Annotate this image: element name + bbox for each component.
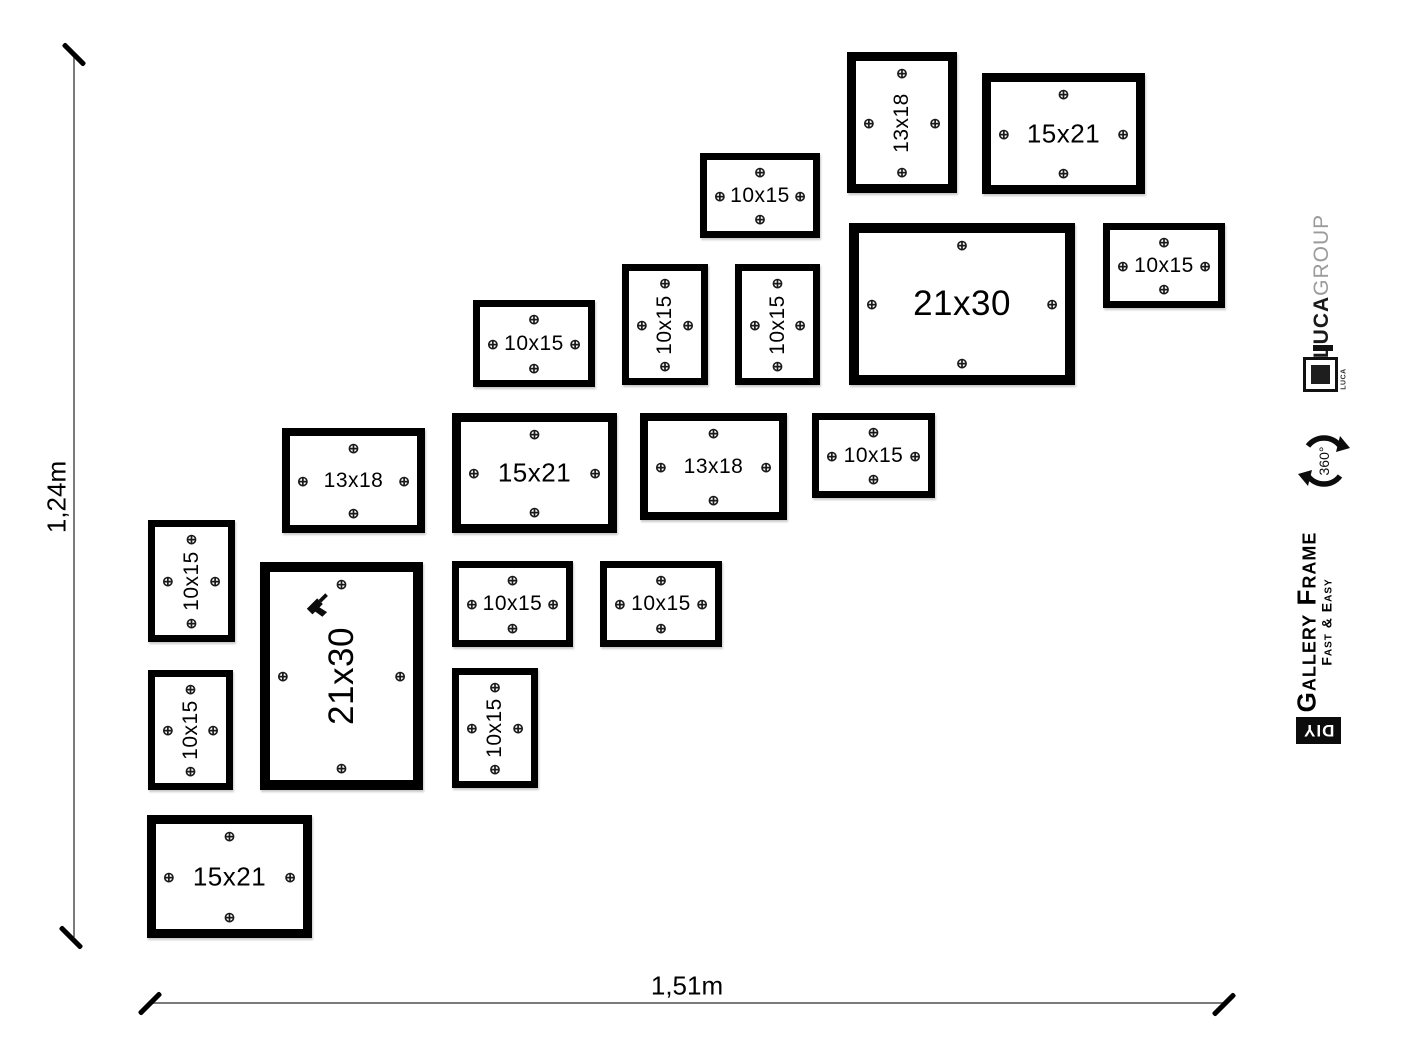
company-logo-inner-square	[1311, 365, 1330, 384]
gallery-wall-layout-diagram: 13x18⊕⊕⊕⊕15x21⊕⊕⊕⊕10x15⊕⊕⊕⊕21x30⊕⊕⊕⊕10x1…	[0, 0, 1412, 1063]
wall-width-label: 1,51m	[651, 971, 723, 1002]
screw-icon: ⊕	[929, 116, 941, 130]
screw-icon: ⊕	[297, 474, 309, 488]
screw-icon: ⊕	[529, 505, 541, 519]
screw-icon: ⊕	[507, 573, 519, 587]
screw-icon: ⊕	[394, 669, 406, 683]
frame-size-label: 13x18	[684, 455, 744, 479]
screw-icon: ⊕	[794, 189, 806, 203]
frame-21x30-4: 21x30⊕⊕⊕⊕	[849, 223, 1075, 385]
company-logo-small-text: LUCA	[1341, 368, 1348, 389]
screw-icon: ⊕	[186, 532, 198, 546]
frame-21x30-14: 21x30⊕⊕⊕⊕	[260, 562, 423, 790]
screw-icon: ⊕	[659, 276, 671, 290]
frame-10x15-13: 10x15⊕⊕⊕⊕	[148, 520, 235, 642]
screw-icon: ⊕	[163, 870, 175, 884]
frame-10x15-16: 10x15⊕⊕⊕⊕	[600, 561, 722, 647]
screw-icon: ⊕	[1058, 166, 1070, 180]
screw-icon: ⊕	[528, 361, 540, 375]
screw-icon: ⊕	[714, 189, 726, 203]
frame-10x15-6: 10x15⊕⊕⊕⊕	[473, 300, 595, 387]
screw-icon: ⊕	[1158, 235, 1170, 249]
frame-10x15-3: 10x15⊕⊕⊕⊕	[700, 153, 820, 238]
company-logo-mark	[1303, 357, 1338, 392]
frame-15x21-2: 15x21⊕⊕⊕⊕	[982, 73, 1145, 194]
screw-icon: ⊕	[956, 356, 968, 370]
frame-size-label: 10x15	[1134, 254, 1194, 278]
height-dimension-line	[73, 54, 75, 937]
screw-icon: ⊕	[696, 597, 708, 611]
product-name: Gallery Frame	[1293, 532, 1319, 713]
frame-10x15-18: 10x15⊕⊕⊕⊕	[452, 668, 538, 788]
screw-icon: ⊕	[186, 616, 198, 630]
screw-icon: ⊕	[487, 337, 499, 351]
frame-size-label: 10x15	[631, 592, 691, 616]
screw-icon: ⊕	[655, 573, 667, 587]
frame-10x15-5: 10x15⊕⊕⊕⊕	[1103, 223, 1225, 308]
screw-icon: ⊕	[754, 212, 766, 226]
screw-icon: ⊕	[754, 165, 766, 179]
frame-size-label: 13x18	[890, 93, 914, 153]
screw-icon: ⊕	[772, 359, 784, 373]
screw-icon: ⊕	[398, 474, 410, 488]
width-dimension-line	[150, 1002, 1223, 1004]
screw-icon: ⊕	[507, 621, 519, 635]
screw-icon: ⊕	[1117, 259, 1129, 273]
height-dimension-tick-bottom	[59, 925, 84, 950]
screw-icon: ⊕	[896, 66, 908, 80]
company-logo-text: LUCAGROUP	[1310, 214, 1334, 358]
frame-13x18-11: 13x18⊕⊕⊕⊕	[640, 413, 787, 520]
frame-10x15-17: 10x15⊕⊕⊕⊕	[148, 670, 233, 790]
screw-icon: ⊕	[708, 426, 720, 440]
screw-icon: ⊕	[682, 318, 694, 332]
frame-size-label: 13x18	[324, 469, 384, 493]
frame-size-label: 15x21	[498, 458, 571, 489]
screw-icon: ⊕	[868, 472, 880, 486]
frame-size-label: 10x15	[483, 698, 507, 758]
diy-badge-label: DIY	[1303, 722, 1334, 739]
screw-icon: ⊕	[708, 493, 720, 507]
screw-icon: ⊕	[528, 312, 540, 326]
frame-15x21-10: 15x21⊕⊕⊕⊕	[452, 413, 617, 533]
frame-10x15-15: 10x15⊕⊕⊕⊕	[452, 561, 573, 647]
screw-icon: ⊕	[185, 764, 197, 778]
screw-icon: ⊕	[348, 441, 360, 455]
screw-icon: ⊕	[336, 761, 348, 775]
screw-icon: ⊕	[909, 449, 921, 463]
screw-icon: ⊕	[209, 574, 221, 588]
screw-icon: ⊕	[956, 238, 968, 252]
frame-size-label: 10x15	[504, 332, 564, 356]
frame-size-label: 10x15	[483, 592, 543, 616]
screw-icon: ⊕	[589, 466, 601, 480]
wall-height-label: 1,24m	[42, 461, 73, 533]
screw-icon: ⊕	[1199, 259, 1211, 273]
frame-size-label: 15x21	[193, 861, 266, 892]
screw-icon: ⊕	[760, 460, 772, 474]
screw-icon: ⊕	[772, 276, 784, 290]
frame-size-label: 10x15	[766, 295, 790, 355]
diy-badge: DIY	[1296, 717, 1341, 744]
screw-icon: ⊕	[636, 318, 648, 332]
frame-13x18-1: 13x18⊕⊕⊕⊕	[847, 52, 957, 193]
screw-icon: ⊕	[998, 127, 1010, 141]
screw-icon: ⊕	[1158, 282, 1170, 296]
screw-icon: ⊕	[468, 466, 480, 480]
frame-size-label: 10x15	[653, 295, 677, 355]
frame-size-label: 15x21	[1027, 118, 1100, 149]
company-name-light: GROUP	[1310, 214, 1333, 296]
screw-icon: ⊕	[569, 337, 581, 351]
frame-size-label: 21x30	[913, 284, 1011, 324]
screw-icon: ⊕	[749, 318, 761, 332]
screw-icon: ⊕	[547, 597, 559, 611]
screw-icon: ⊕	[655, 621, 667, 635]
screw-icon: ⊕	[1046, 297, 1058, 311]
frame-size-label: 10x15	[180, 551, 204, 611]
screw-icon: ⊕	[489, 680, 501, 694]
frame-size-label: 21x30	[322, 627, 362, 725]
screw-icon: ⊕	[162, 574, 174, 588]
screw-icon: ⊕	[529, 427, 541, 441]
company-logo-bar	[1313, 345, 1333, 351]
product-tagline: Fast & Easy	[1319, 532, 1334, 713]
screw-icon: ⊕	[1058, 87, 1070, 101]
screw-icon: ⊕	[659, 359, 671, 373]
screw-icon: ⊕	[614, 597, 626, 611]
width-dimension-tick-right	[1212, 992, 1237, 1017]
screw-icon: ⊕	[224, 910, 236, 924]
screw-icon: ⊕	[512, 721, 524, 735]
product-logo-text: Gallery Frame Fast & Easy	[1293, 532, 1334, 713]
screw-icon: ⊕	[866, 297, 878, 311]
screw-icon: ⊕	[185, 682, 197, 696]
screw-icon: ⊕	[868, 425, 880, 439]
screw-icon: ⊕	[863, 116, 875, 130]
screw-icon: ⊕	[655, 460, 667, 474]
screw-icon: ⊕	[162, 723, 174, 737]
screw-icon: ⊕	[466, 597, 478, 611]
frame-15x21-19: 15x21⊕⊕⊕⊕	[147, 815, 312, 938]
frame-size-label: 10x15	[730, 184, 790, 208]
screw-icon: ⊕	[284, 870, 296, 884]
screw-icon: ⊕	[794, 318, 806, 332]
drill-icon	[304, 589, 336, 621]
screw-icon: ⊕	[277, 669, 289, 683]
screw-icon: ⊕	[348, 506, 360, 520]
screw-icon: ⊕	[896, 165, 908, 179]
screw-icon: ⊕	[207, 723, 219, 737]
screw-icon: ⊕	[1117, 127, 1129, 141]
frame-size-label: 10x15	[844, 444, 904, 468]
screw-icon: ⊕	[489, 762, 501, 776]
frame-10x15-12: 10x15⊕⊕⊕⊕	[812, 413, 935, 498]
frame-10x15-8: 10x15⊕⊕⊕⊕	[735, 264, 820, 385]
frame-10x15-7: 10x15⊕⊕⊕⊕	[622, 264, 708, 385]
screw-icon: ⊕	[466, 721, 478, 735]
screw-icon: ⊕	[336, 577, 348, 591]
screw-icon: ⊕	[224, 829, 236, 843]
screw-icon: ⊕	[826, 449, 838, 463]
rotation-360-icon: 360°	[1294, 428, 1354, 498]
frame-size-label: 10x15	[179, 700, 203, 760]
frame-13x18-9: 13x18⊕⊕⊕⊕	[282, 428, 425, 533]
rotation-360-label: 360°	[1316, 447, 1332, 476]
